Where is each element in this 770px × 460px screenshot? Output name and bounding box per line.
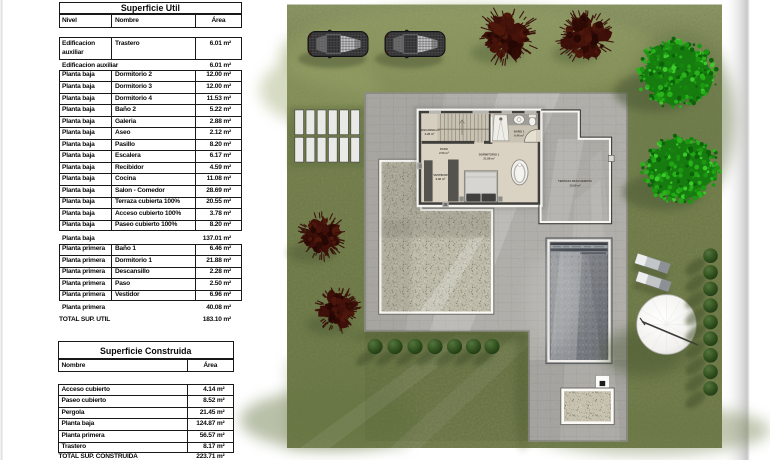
svg-text:2.28 m²: 2.28 m² xyxy=(425,132,435,136)
svg-text:21.88 m²: 21.88 m² xyxy=(483,157,494,161)
svg-text:2.50 m²: 2.50 m² xyxy=(439,151,449,155)
svg-text:6.96 m²: 6.96 m² xyxy=(436,177,446,181)
svg-text:TERRAZA DESCUBIERTA: TERRAZA DESCUBIERTA xyxy=(558,179,592,183)
svg-text:15.90 m²: 15.90 m² xyxy=(569,184,580,188)
svg-text:6.46 m²: 6.46 m² xyxy=(514,134,524,138)
